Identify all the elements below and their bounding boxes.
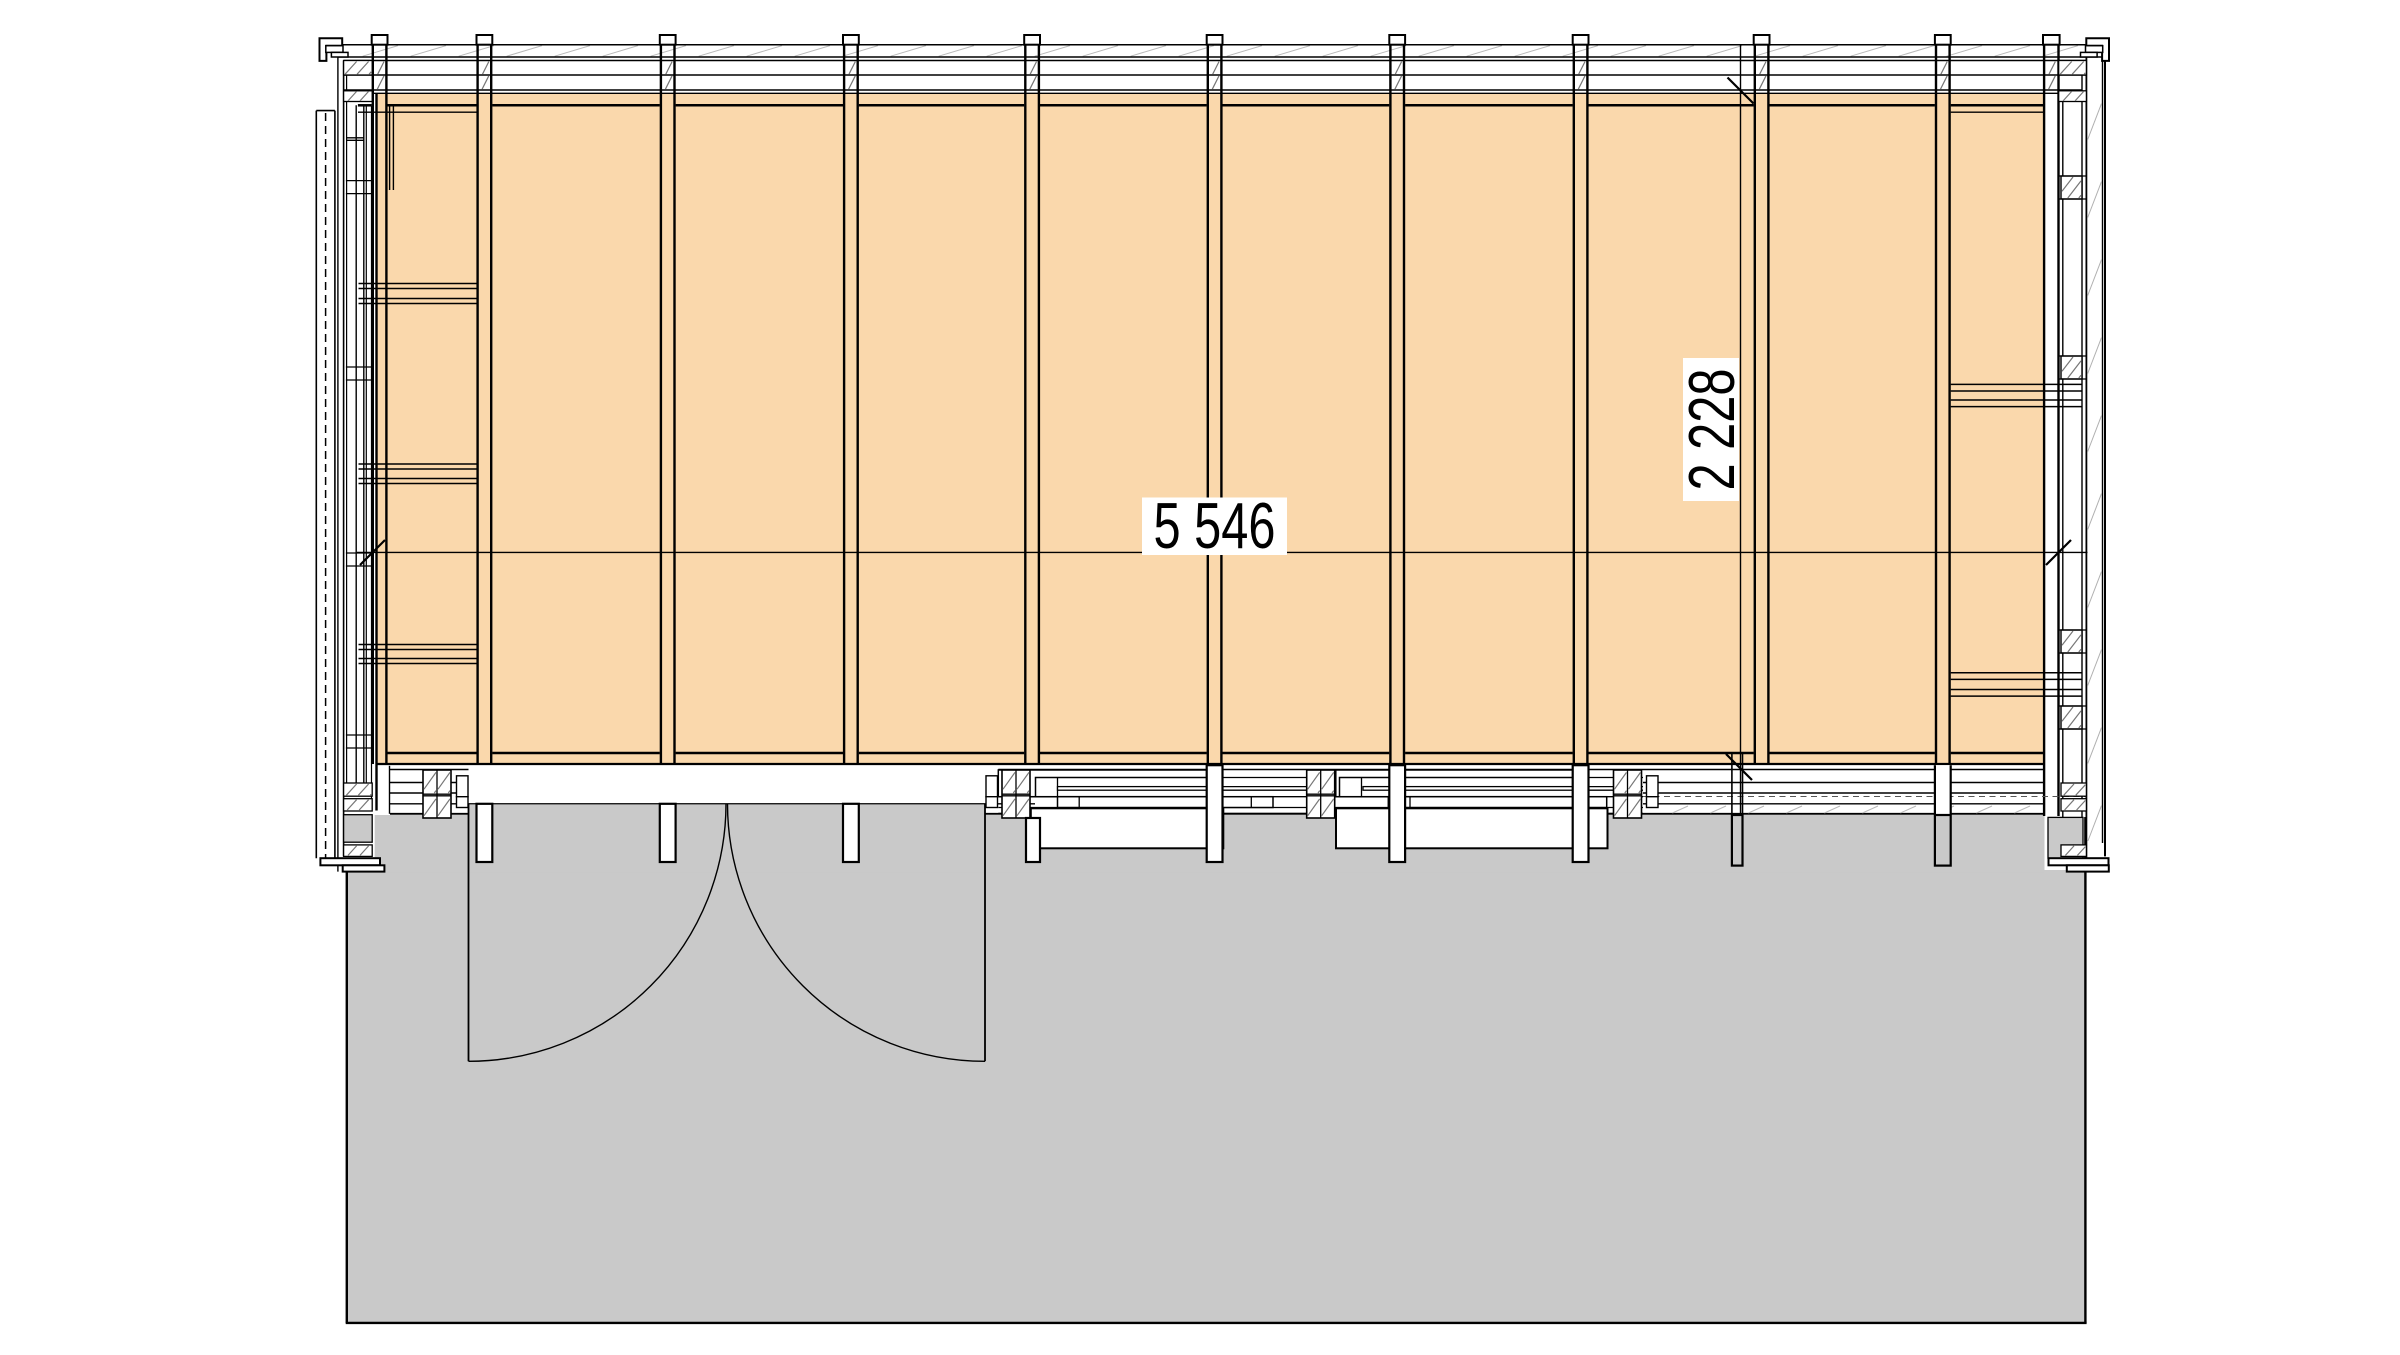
svg-text:2 228: 2 228	[1676, 369, 1748, 491]
svg-text:5 546: 5 546	[1154, 490, 1276, 562]
